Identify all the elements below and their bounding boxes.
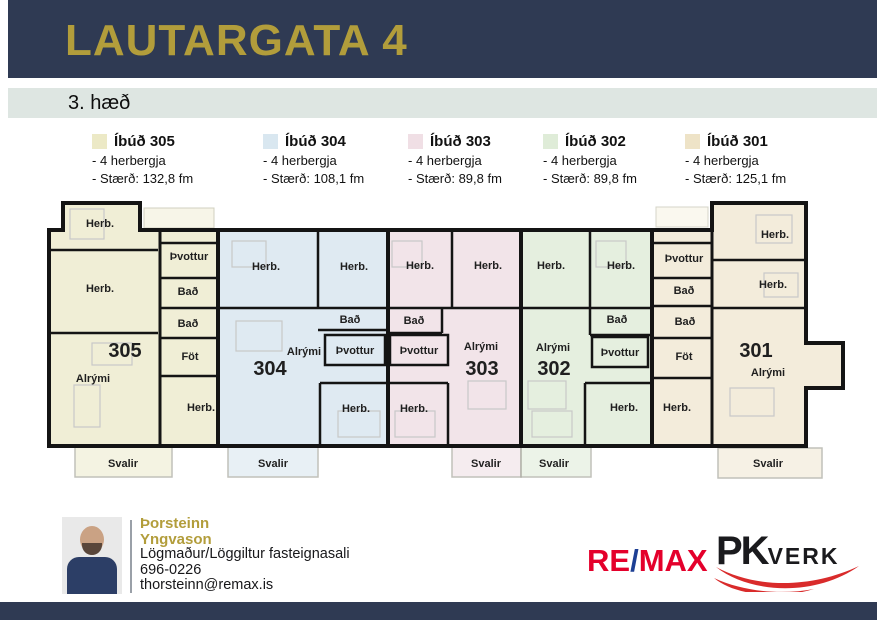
room-label: Herb.: [607, 260, 635, 272]
legend-swatch-303: [408, 134, 423, 149]
balcony-label: Svalir: [539, 458, 570, 470]
legend-item-301: Íbúð 301 - 4 herbergja - Stærð: 125,1 fm: [685, 133, 860, 186]
room-label: Herb.: [342, 403, 370, 415]
room-label: Bað: [675, 316, 696, 328]
room-label: Bað: [674, 285, 695, 297]
bottom-bar: [0, 602, 877, 620]
agent-first-name: Þorsteinn: [140, 516, 350, 532]
room-label: Herb.: [537, 260, 565, 272]
room-label: Alrými: [287, 346, 321, 358]
legend-swatch-301: [685, 134, 700, 149]
room-label: Þvottur: [665, 253, 704, 265]
room-label: Bað: [340, 314, 361, 326]
room-label: Herb.: [610, 402, 638, 414]
room-label: Herb.: [663, 402, 691, 414]
room-label: Herb.: [187, 402, 215, 414]
room-label: Þvottur: [170, 251, 209, 263]
room-label: Herb.: [759, 279, 787, 291]
apartment-303: Herb. Herb. Bað Þvottur Alrými Herb. Sva…: [388, 230, 521, 477]
room-label: Herb.: [86, 283, 114, 295]
legend-swatch-302: [543, 134, 558, 149]
room-label: Bað: [178, 318, 199, 330]
pkverk-swoosh-icon: [712, 564, 862, 592]
floor-label: 3. hæð: [68, 92, 130, 115]
footer-divider: [130, 520, 132, 593]
balcony-label: Svalir: [108, 458, 139, 470]
apartment-304: Herb. Herb. Bað Alrými Þvottur Herb. Sva…: [218, 230, 388, 477]
legend-size-305: - Stærð: 132,8 fm: [92, 172, 267, 186]
balcony-label: Svalir: [753, 458, 784, 470]
floor-plan: Herb. Þvottur Herb. Bað Bað Föt Alrými H…: [40, 193, 850, 493]
room-label: Alrými: [536, 342, 570, 354]
legend-head-305: Íbúð 305: [92, 133, 267, 150]
roof-outline: [656, 207, 708, 227]
room-label: Alrými: [76, 373, 110, 385]
agent-info: Þorsteinn Yngvason Lögmaður/Löggiltur fa…: [140, 516, 350, 594]
room-label: Herb.: [761, 229, 789, 241]
room-label: Herb.: [252, 261, 280, 273]
apartment-number-305: 305: [108, 340, 141, 362]
legend-title-301: Íbúð 301: [707, 133, 768, 150]
room-label: Bað: [178, 286, 199, 298]
apartment-number-303: 303: [465, 358, 498, 380]
legend-title-302: Íbúð 302: [565, 133, 626, 150]
apartment-number-301: 301: [739, 340, 772, 362]
flyer-page: LAUTARGATA 4 3. hæð Íbúð 305 - 4 herberg…: [0, 0, 877, 620]
legend-rooms-305: - 4 herbergja: [92, 154, 267, 168]
room-label: Herb.: [86, 218, 114, 230]
remax-logo-re: RE: [587, 543, 630, 578]
room-label: Bað: [404, 315, 425, 327]
apartment-301: Þvottur Bað Bað Föt Herb. Herb. Alrými H…: [652, 203, 843, 478]
room-label: Herb.: [474, 260, 502, 272]
room-label: Föt: [675, 351, 692, 363]
agent-last-name: Yngvason: [140, 532, 350, 548]
room-label: Bað: [607, 314, 628, 326]
room-label: Herb.: [400, 403, 428, 415]
legend-rooms-301: - 4 herbergja: [685, 154, 860, 168]
balcony-label: Svalir: [471, 458, 502, 470]
agent-phone: 696-0226: [140, 563, 350, 579]
remax-logo-max: MAX: [639, 543, 708, 578]
remax-logo: RE/MAX: [587, 543, 708, 579]
room-label: Alrými: [751, 367, 785, 379]
legend-size-301: - Stærð: 125,1 fm: [685, 172, 860, 186]
apartment-number-304: 304: [253, 358, 287, 380]
roof-outline: [144, 208, 214, 228]
swoosh-curve: [716, 566, 859, 588]
remax-logo-slash: /: [630, 543, 639, 578]
legend-title-305: Íbúð 305: [114, 133, 175, 150]
room-label: Þvottur: [336, 345, 375, 357]
room-label: Föt: [181, 351, 198, 363]
apartment-305: Herb. Þvottur Herb. Bað Bað Föt Alrými H…: [49, 203, 218, 477]
room-label: Herb.: [340, 261, 368, 273]
agent-photo: [62, 517, 122, 594]
legend-item-305: Íbúð 305 - 4 herbergja - Stærð: 132,8 fm: [92, 133, 267, 186]
agent-photo-beard: [82, 543, 102, 555]
legend-head-301: Íbúð 301: [685, 133, 860, 150]
legend-swatch-305: [92, 134, 107, 149]
agent-role: Lögmaður/Löggiltur fasteignasali: [140, 547, 350, 563]
room-label: Þvottur: [400, 345, 439, 357]
legend-swatch-304: [263, 134, 278, 149]
agent-photo-torso: [67, 557, 117, 594]
floor-subheader: 3. hæð: [8, 88, 877, 118]
room-label: Herb.: [406, 260, 434, 272]
balcony-label: Svalir: [258, 458, 289, 470]
legend-title-303: Íbúð 303: [430, 133, 491, 150]
agent-email: thorsteinn@remax.is: [140, 578, 350, 594]
legend-title-304: Íbúð 304: [285, 133, 346, 150]
room-label: Þvottur: [601, 347, 640, 359]
apartment-302: Herb. Herb. Bað Þvottur Alrými Herb. Sva…: [521, 230, 652, 477]
header-bar: LAUTARGATA 4: [8, 0, 877, 78]
page-title: LAUTARGATA 4: [65, 0, 408, 82]
apartment-number-302: 302: [537, 358, 570, 380]
room-label: Alrými: [464, 341, 498, 353]
